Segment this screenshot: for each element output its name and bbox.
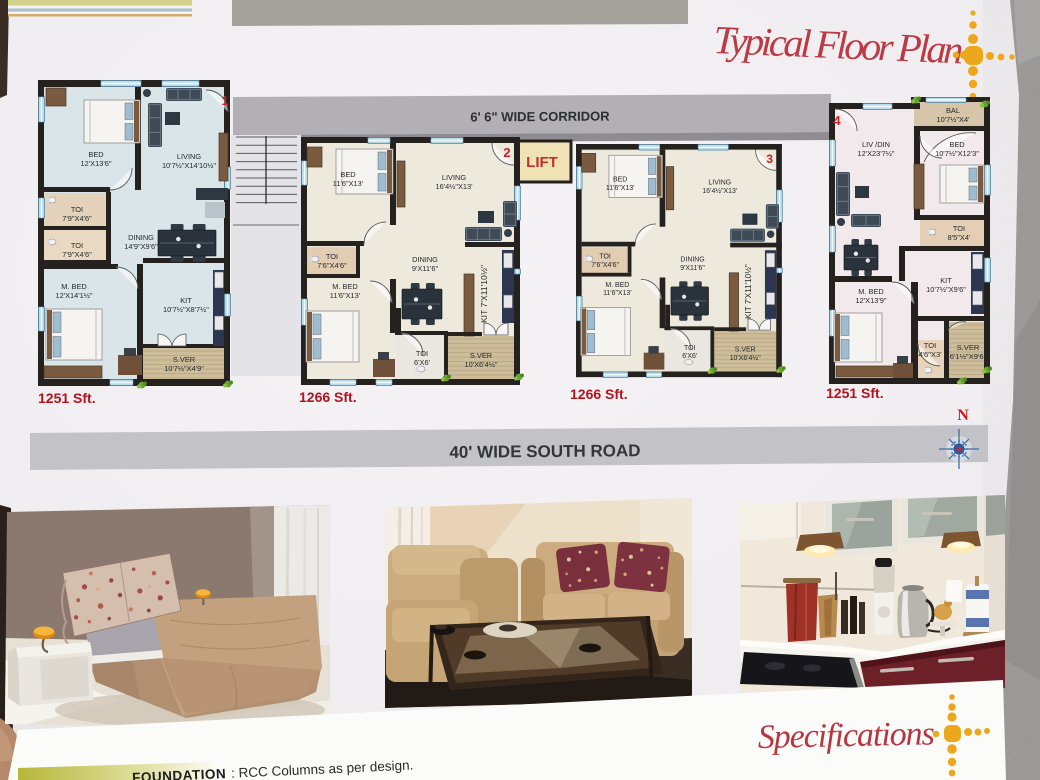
svg-text:KIT: KIT: [940, 276, 952, 285]
svg-text:10'7½"X4': 10'7½"X4': [937, 115, 971, 124]
svg-text:TOI: TOI: [684, 345, 696, 352]
svg-text:11'6"X13': 11'6"X13': [606, 185, 635, 192]
svg-text:12'X23'7½": 12'X23'7½": [857, 149, 894, 158]
svg-text:N: N: [957, 407, 969, 424]
svg-text:11'6"X13': 11'6"X13': [330, 291, 361, 300]
svg-text:12'X13'6": 12'X13'6": [81, 159, 112, 168]
svg-text:TOI: TOI: [953, 224, 965, 233]
svg-text:TOI: TOI: [326, 252, 338, 261]
svg-text:7'9"X4'6": 7'9"X4'6": [62, 214, 92, 223]
svg-text:2: 2: [503, 145, 510, 160]
svg-text:4: 4: [833, 113, 841, 128]
svg-text:M. BED: M. BED: [605, 282, 629, 289]
svg-text:TOI: TOI: [71, 241, 83, 250]
svg-text:7'6"X4'6": 7'6"X4'6": [317, 261, 347, 270]
svg-text:M. BED: M. BED: [332, 282, 357, 291]
svg-text:LIVING: LIVING: [442, 173, 466, 182]
svg-text:S.VER: S.VER: [957, 343, 980, 352]
svg-text:DINING: DINING: [680, 257, 704, 264]
svg-text:S.VER: S.VER: [470, 351, 492, 360]
svg-text:S.VER: S.VER: [735, 347, 756, 354]
svg-text:KIT 7'X11'10½": KIT 7'X11'10½": [479, 265, 489, 323]
svg-text:9'X11'6": 9'X11'6": [680, 265, 705, 272]
svg-text:10'7½"X14'10½": 10'7½"X14'10½": [162, 161, 216, 170]
svg-text:BED: BED: [88, 150, 103, 159]
svg-text:TOI: TOI: [924, 341, 937, 350]
svg-text:KIT 7'X11'10½": KIT 7'X11'10½": [744, 264, 753, 319]
svg-text:11'6"X13': 11'6"X13': [333, 179, 364, 188]
svg-text:6'X6': 6'X6': [682, 353, 697, 360]
svg-text:LIVING: LIVING: [177, 152, 201, 161]
svg-text:10'7½"X9'6": 10'7½"X9'6": [926, 285, 966, 294]
svg-text:12'X13'9": 12'X13'9": [856, 296, 887, 305]
svg-text:7'9"X4'6": 7'9"X4'6": [62, 250, 92, 259]
svg-text:TOI: TOI: [71, 205, 83, 214]
svg-text:10'7½"X12'3": 10'7½"X12'3": [935, 149, 979, 158]
svg-text:S.VER: S.VER: [173, 355, 195, 364]
svg-text:1266 Sft.: 1266 Sft.: [299, 389, 357, 405]
svg-text:DINING: DINING: [412, 255, 438, 264]
svg-text:11'6"X13': 11'6"X13': [603, 290, 632, 297]
svg-text:LIV /DIN: LIV /DIN: [862, 140, 890, 149]
svg-text:16'4½"X13': 16'4½"X13': [435, 182, 473, 191]
svg-text:1: 1: [221, 93, 228, 108]
svg-text:8'5"X4': 8'5"X4': [948, 233, 971, 242]
svg-text:6' 6" WIDE CORRIDOR: 6' 6" WIDE CORRIDOR: [470, 109, 610, 125]
svg-text:BED: BED: [613, 177, 627, 184]
svg-text:1251 Sft.: 1251 Sft.: [826, 385, 884, 401]
svg-text:BED: BED: [949, 140, 964, 149]
svg-text:1266 Sft.: 1266 Sft.: [570, 386, 628, 402]
svg-text:LIFT: LIFT: [526, 154, 558, 171]
svg-text:9'X11'6": 9'X11'6": [412, 264, 439, 273]
svg-text:DINING: DINING: [128, 233, 154, 242]
svg-text:10'X6'4½": 10'X6'4½": [730, 354, 761, 362]
svg-text:1251 Sft.: 1251 Sft.: [38, 390, 96, 406]
svg-text:TOI: TOI: [416, 349, 428, 358]
svg-text:M. BED: M. BED: [61, 282, 86, 291]
svg-text:LIVING: LIVING: [708, 179, 731, 186]
svg-text:TOI: TOI: [599, 254, 611, 261]
svg-text:Specifications: Specifications: [757, 715, 935, 756]
svg-text:BAL: BAL: [946, 106, 960, 115]
svg-text:40' WIDE SOUTH ROAD: 40' WIDE SOUTH ROAD: [449, 441, 640, 462]
svg-text:10'X6'4½": 10'X6'4½": [465, 360, 498, 369]
svg-text:12'X14'1½": 12'X14'1½": [55, 291, 92, 300]
svg-text:6'X6': 6'X6': [414, 358, 431, 367]
svg-text:6'1½"X9'6": 6'1½"X9'6": [950, 352, 987, 361]
svg-text:3: 3: [766, 152, 773, 166]
svg-text:10'7½"X8'7½": 10'7½"X8'7½": [163, 305, 209, 314]
svg-text:14'9"X9'6": 14'9"X9'6": [124, 242, 158, 251]
svg-text:10'7½"X4'9": 10'7½"X4'9": [164, 364, 204, 373]
svg-text:16'4½"X13': 16'4½"X13': [702, 187, 737, 195]
svg-text:KIT: KIT: [180, 296, 192, 305]
svg-text:7'6"X4'6": 7'6"X4'6": [591, 262, 619, 269]
svg-text:BED: BED: [340, 170, 355, 179]
svg-text:M. BED: M. BED: [858, 287, 883, 296]
svg-text:4'6"X3': 4'6"X3': [918, 350, 942, 359]
